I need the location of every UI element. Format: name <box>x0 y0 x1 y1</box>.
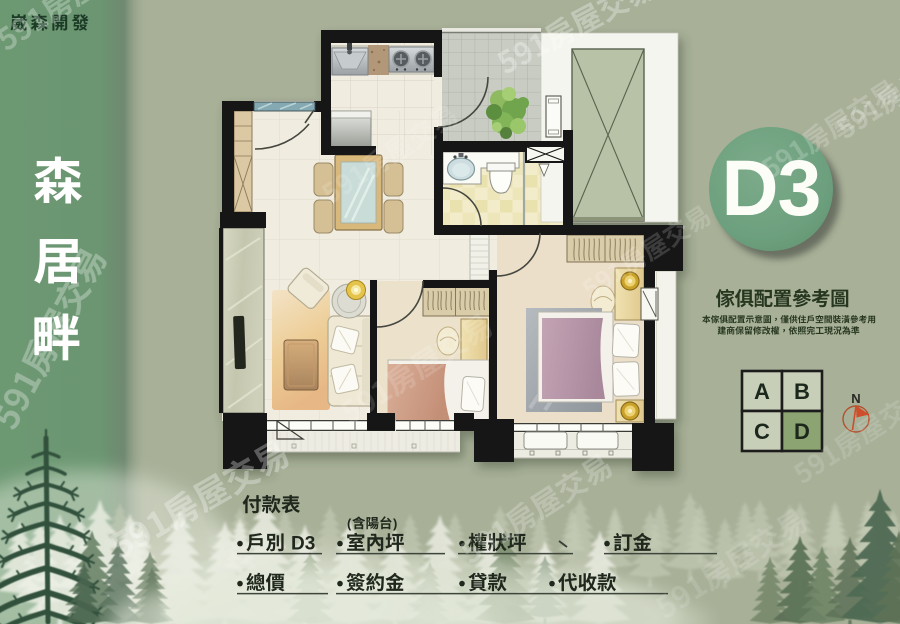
svg-text:B: B <box>794 379 810 404</box>
svg-text:): ) <box>393 516 397 531</box>
svg-text:C: C <box>754 419 770 444</box>
svg-text:N: N <box>851 391 860 406</box>
svg-text:D: D <box>794 419 810 444</box>
svg-text:D3: D3 <box>291 534 315 555</box>
svg-text:(: ( <box>347 516 352 531</box>
svg-text:A: A <box>754 379 770 404</box>
